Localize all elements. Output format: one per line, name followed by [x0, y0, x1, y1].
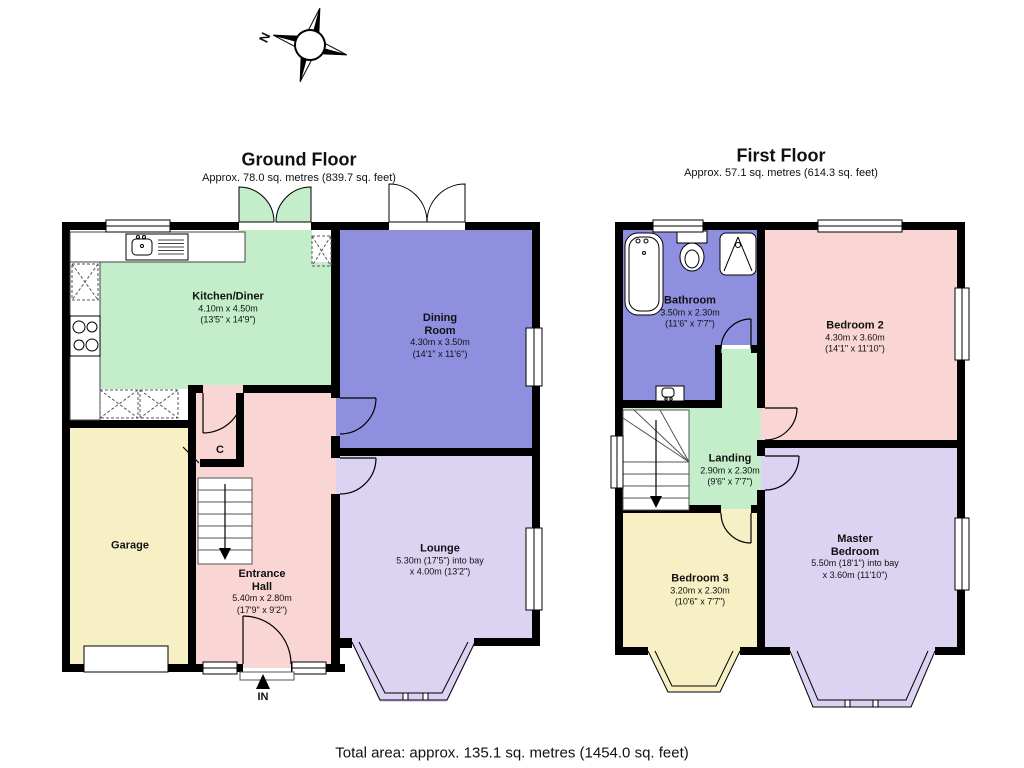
ground-floor-plan — [62, 184, 542, 702]
total-area-label: Total area: approx. 135.1 sq. metres (14… — [335, 745, 689, 762]
kitchen-label: Kitchen/Diner 4.10m x 4.50m (13'5" x 14'… — [192, 290, 264, 325]
bath-fixture — [625, 233, 663, 315]
room-dims: 5.50m (18'1") into bay x 3.60m (11'10") — [811, 558, 898, 581]
room-dims: 4.30m x 3.60m (14'1" x 11'10") — [825, 332, 885, 355]
bedroom3-label: Bedroom 3 3.20m x 2.30m (10'6" x 7'7") — [670, 572, 730, 607]
entrance-in-label: IN — [258, 691, 269, 703]
bedroom2-label: Bedroom 2 4.30m x 3.60m (14'1" x 11'10") — [825, 319, 885, 354]
entrance-step — [240, 672, 294, 689]
hall-window-right — [292, 662, 326, 674]
room-dims: 2.90m x 2.30m (9'6" x 7'7") — [700, 465, 760, 488]
room-name: Kitchen/Diner — [192, 290, 264, 303]
floorplan-drawing — [0, 0, 1024, 768]
cupboard-label: C — [216, 444, 224, 456]
first-floor-title: First Floor — [737, 146, 826, 167]
room-dims: 4.30m x 3.50m (14'1" x 11'6") — [410, 337, 470, 360]
basin-fixture — [656, 386, 684, 401]
garage-door — [84, 646, 168, 672]
bathroom-window — [653, 220, 703, 232]
landing-window — [611, 436, 623, 488]
kitchen-window — [106, 220, 170, 232]
hall-window-left — [203, 662, 237, 674]
room-name: Bathroom — [660, 294, 720, 307]
ground-floor-subtitle: Approx. 78.0 sq. metres (839.7 sq. feet) — [202, 172, 396, 184]
first-floor-subtitle: Approx. 57.1 sq. metres (614.3 sq. feet) — [684, 167, 878, 179]
hob-fixture — [70, 316, 100, 356]
landing-label: Landing 2.90m x 2.30m (9'6" x 7'7") — [700, 452, 760, 487]
lounge-label: Lounge 5.30m (17'5") into bay x 4.00m (1… — [396, 542, 483, 577]
master-bay-floor — [790, 649, 935, 707]
master-side-window — [955, 518, 969, 590]
room-name: Landing — [700, 452, 760, 465]
shower-fixture — [720, 233, 756, 275]
room-name: Bedroom 2 — [825, 319, 885, 332]
garage-label: Garage — [111, 540, 149, 553]
lounge-window — [526, 528, 542, 610]
room-dims: 5.40m x 2.80m (17'9" x 9'2") — [232, 593, 292, 616]
ground-floor-title: Ground Floor — [242, 150, 357, 171]
room-name: Dining Room — [410, 312, 470, 337]
sink-fixture — [126, 234, 188, 260]
hall-label: Entrance Hall 5.40m x 2.80m (17'9" x 9'2… — [232, 568, 292, 616]
gf-stairs — [198, 478, 252, 564]
room-dims: 3.20m x 2.30m (10'6" x 7'7") — [670, 585, 730, 608]
dining-window — [526, 328, 542, 386]
first-floor-plan — [611, 220, 969, 707]
floorplan-page: N Ground Floor Approx. 78.0 sq. metres (… — [0, 0, 1024, 768]
kitchen-french-doors — [239, 187, 311, 230]
ff-stairs — [623, 410, 689, 510]
compass-rose-icon — [263, 0, 356, 92]
room-dims: 3.50m x 2.30m (11'6" x 7'7") — [660, 307, 720, 330]
room-dims: 5.30m (17'5") into bay x 4.00m (13'2") — [396, 555, 483, 578]
room-name: Bedroom 3 — [670, 572, 730, 585]
bedroom2-side-window — [955, 288, 969, 360]
room-dims: 4.10m x 4.50m (13'5" x 14'9") — [192, 303, 264, 326]
bathroom-label: Bathroom 3.50m x 2.30m (11'6" x 7'7") — [660, 294, 720, 329]
master-label: Master Bedroom 5.50m (18'1") into bay x … — [811, 533, 898, 581]
room-name: Master Bedroom — [811, 533, 898, 558]
room-name: Lounge — [396, 542, 483, 555]
dining-label: Dining Room 4.30m x 3.50m (14'1" x 11'6"… — [410, 312, 470, 360]
room-name: Entrance Hall — [232, 568, 292, 593]
bedroom2-top-window — [818, 220, 902, 232]
landing-notch-floor — [722, 349, 761, 408]
dining-french-doors — [389, 184, 465, 230]
